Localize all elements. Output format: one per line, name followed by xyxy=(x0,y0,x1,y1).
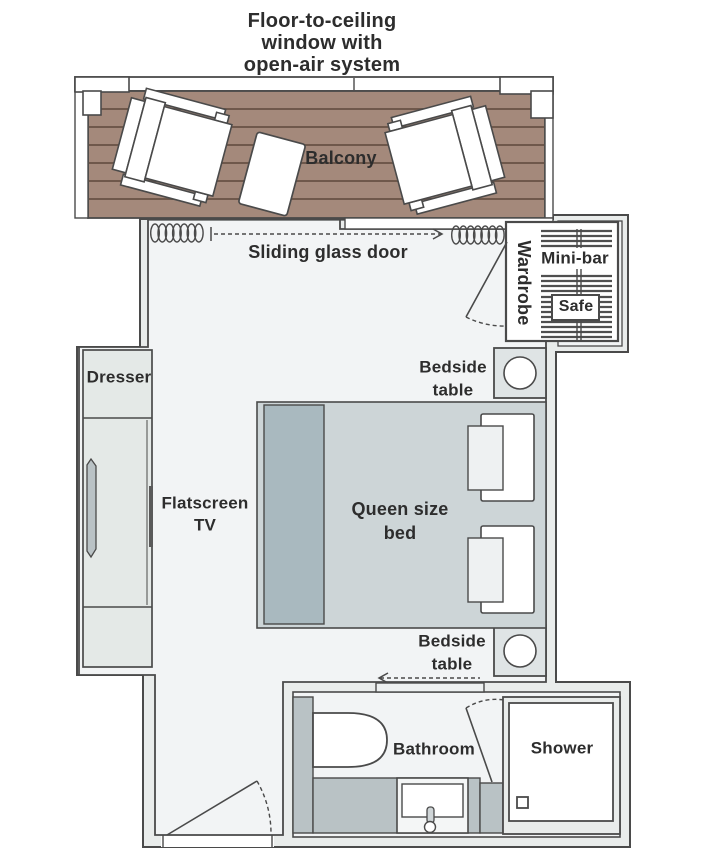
bathroom-label: Bathroom xyxy=(393,741,475,758)
faucet xyxy=(427,807,434,823)
bathroom-door-lintel xyxy=(376,683,484,692)
balcony-label: Balcony xyxy=(305,149,376,167)
title-line-1: Floor-to-ceiling xyxy=(248,11,397,31)
minibar-label: Mini-bar xyxy=(541,250,609,267)
bedside-bottom-label-line1: Bedside xyxy=(418,633,486,650)
tv-label-line1: Flatscreen xyxy=(161,495,248,512)
bedside-top-label-line2: table xyxy=(433,382,474,399)
sliding-door-label: Sliding glass door xyxy=(248,243,408,261)
flatscreen-tv xyxy=(87,459,96,557)
title-line-2: window with xyxy=(261,33,382,53)
safe-label: Safe xyxy=(559,299,594,315)
wardrobe-label: Wardrobe xyxy=(515,241,533,326)
toilet-wall-strip xyxy=(293,697,313,833)
faucet-knob xyxy=(425,822,436,833)
bedside-lamp-top xyxy=(504,357,536,389)
bedside-lamp-bottom xyxy=(504,635,536,667)
bedside-bottom-label-line2: table xyxy=(432,656,473,673)
pillow-bottom-inner xyxy=(468,538,503,602)
tv-screen-edge xyxy=(149,486,153,547)
floorplan-svg xyxy=(0,0,726,861)
bed-label-line1: Queen size xyxy=(351,500,448,518)
bed-headboard xyxy=(264,405,324,624)
cabin-floorplan: Floor-to-ceiling window with open-air sy… xyxy=(0,0,726,861)
tv-label-line2: TV xyxy=(194,517,216,534)
bed-label-line2: bed xyxy=(384,524,417,542)
shower-drain xyxy=(517,797,528,808)
pillow-top-inner xyxy=(468,426,503,490)
entry-door-opening xyxy=(161,836,274,847)
dresser-label: Dresser xyxy=(87,369,152,386)
title-line-3: open-air system xyxy=(244,55,400,75)
toilet xyxy=(313,713,387,767)
bedside-top-label-line1: Bedside xyxy=(419,359,487,376)
shower-divider xyxy=(480,783,503,833)
shower-label: Shower xyxy=(531,740,594,757)
